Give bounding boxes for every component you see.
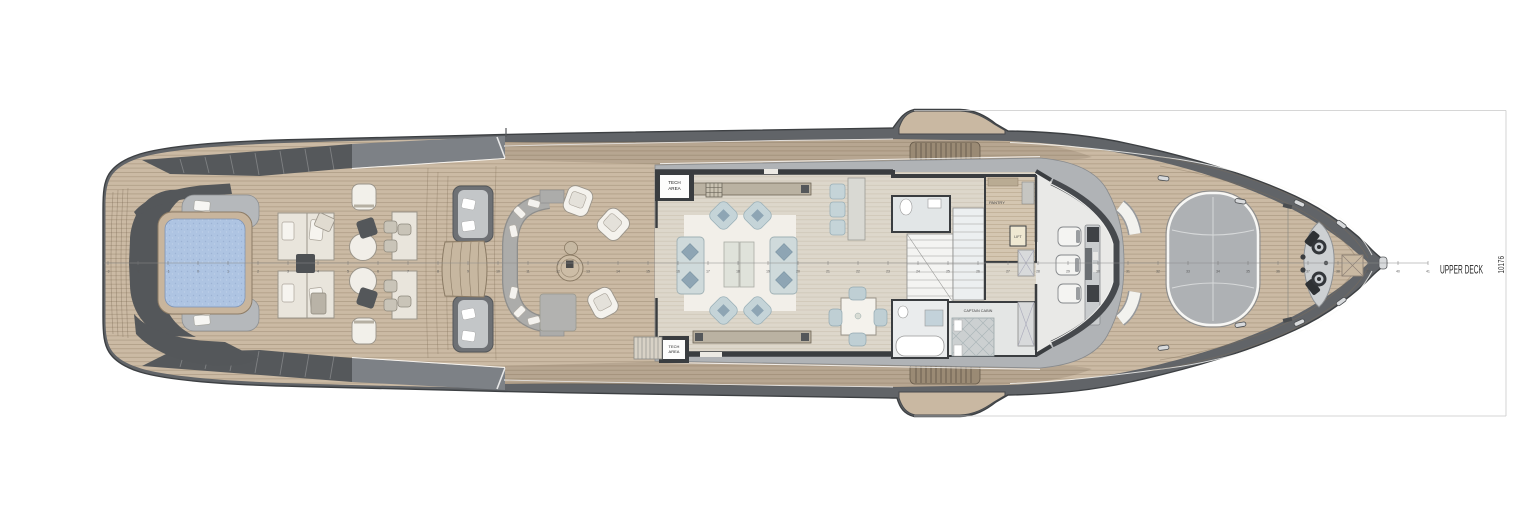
svg-text:41: 41 — [1426, 269, 1430, 273]
svg-text:27: 27 — [1006, 269, 1010, 273]
svg-text:4: 4 — [317, 269, 319, 273]
svg-text:AREA: AREA — [668, 186, 681, 191]
svg-text:37: 37 — [1306, 269, 1310, 273]
svg-text:-3: -3 — [107, 269, 110, 273]
svg-text:15: 15 — [646, 269, 650, 273]
svg-text:40: 40 — [1396, 269, 1400, 273]
svg-text:1: 1 — [227, 269, 229, 273]
svg-text:24: 24 — [916, 269, 920, 273]
svg-text:38: 38 — [1336, 269, 1340, 273]
svg-text:9: 9 — [467, 269, 469, 273]
svg-text:10: 10 — [496, 269, 500, 273]
svg-text:30: 30 — [1096, 269, 1100, 273]
svg-text:AREA: AREA — [669, 349, 680, 354]
svg-text:18: 18 — [736, 269, 740, 273]
svg-text:20: 20 — [796, 269, 800, 273]
svg-text:36: 36 — [1276, 269, 1280, 273]
svg-text:31: 31 — [1126, 269, 1130, 273]
svg-text:16: 16 — [676, 269, 680, 273]
svg-text:UPPER DECK: UPPER DECK — [1440, 265, 1483, 277]
svg-text:25: 25 — [946, 269, 950, 273]
svg-text:-1: -1 — [167, 269, 170, 273]
svg-text:13: 13 — [586, 269, 590, 273]
svg-text:8: 8 — [437, 269, 439, 273]
svg-text:-2: -2 — [137, 269, 140, 273]
svg-text:35: 35 — [1246, 269, 1250, 273]
svg-text:23: 23 — [886, 269, 890, 273]
svg-text:33: 33 — [1186, 269, 1190, 273]
svg-text:12: 12 — [556, 269, 560, 273]
svg-text:29: 29 — [1066, 269, 1070, 273]
svg-text:34: 34 — [1216, 269, 1220, 273]
svg-text:28: 28 — [1036, 269, 1040, 273]
svg-text:7: 7 — [407, 269, 409, 273]
svg-text:11: 11 — [526, 269, 530, 273]
svg-text:22: 22 — [856, 269, 860, 273]
svg-text:39: 39 — [1366, 269, 1370, 273]
svg-text:PANTRY: PANTRY — [989, 200, 1005, 205]
svg-text:0: 0 — [197, 269, 199, 273]
svg-text:5: 5 — [347, 269, 349, 273]
svg-text:10176: 10176 — [1497, 256, 1506, 274]
svg-text:32: 32 — [1156, 269, 1160, 273]
svg-text:21: 21 — [826, 269, 830, 273]
svg-text:6: 6 — [377, 269, 379, 273]
svg-text:26: 26 — [976, 269, 980, 273]
svg-text:19: 19 — [766, 269, 770, 273]
svg-text:LIFT: LIFT — [1014, 235, 1022, 239]
svg-text:CAPTAIN CABIN: CAPTAIN CABIN — [964, 309, 993, 313]
svg-text:3: 3 — [287, 269, 289, 273]
svg-text:14: 14 — [616, 269, 620, 273]
svg-text:2: 2 — [257, 269, 259, 273]
svg-text:TECH: TECH — [668, 180, 681, 185]
svg-text:17: 17 — [706, 269, 710, 273]
